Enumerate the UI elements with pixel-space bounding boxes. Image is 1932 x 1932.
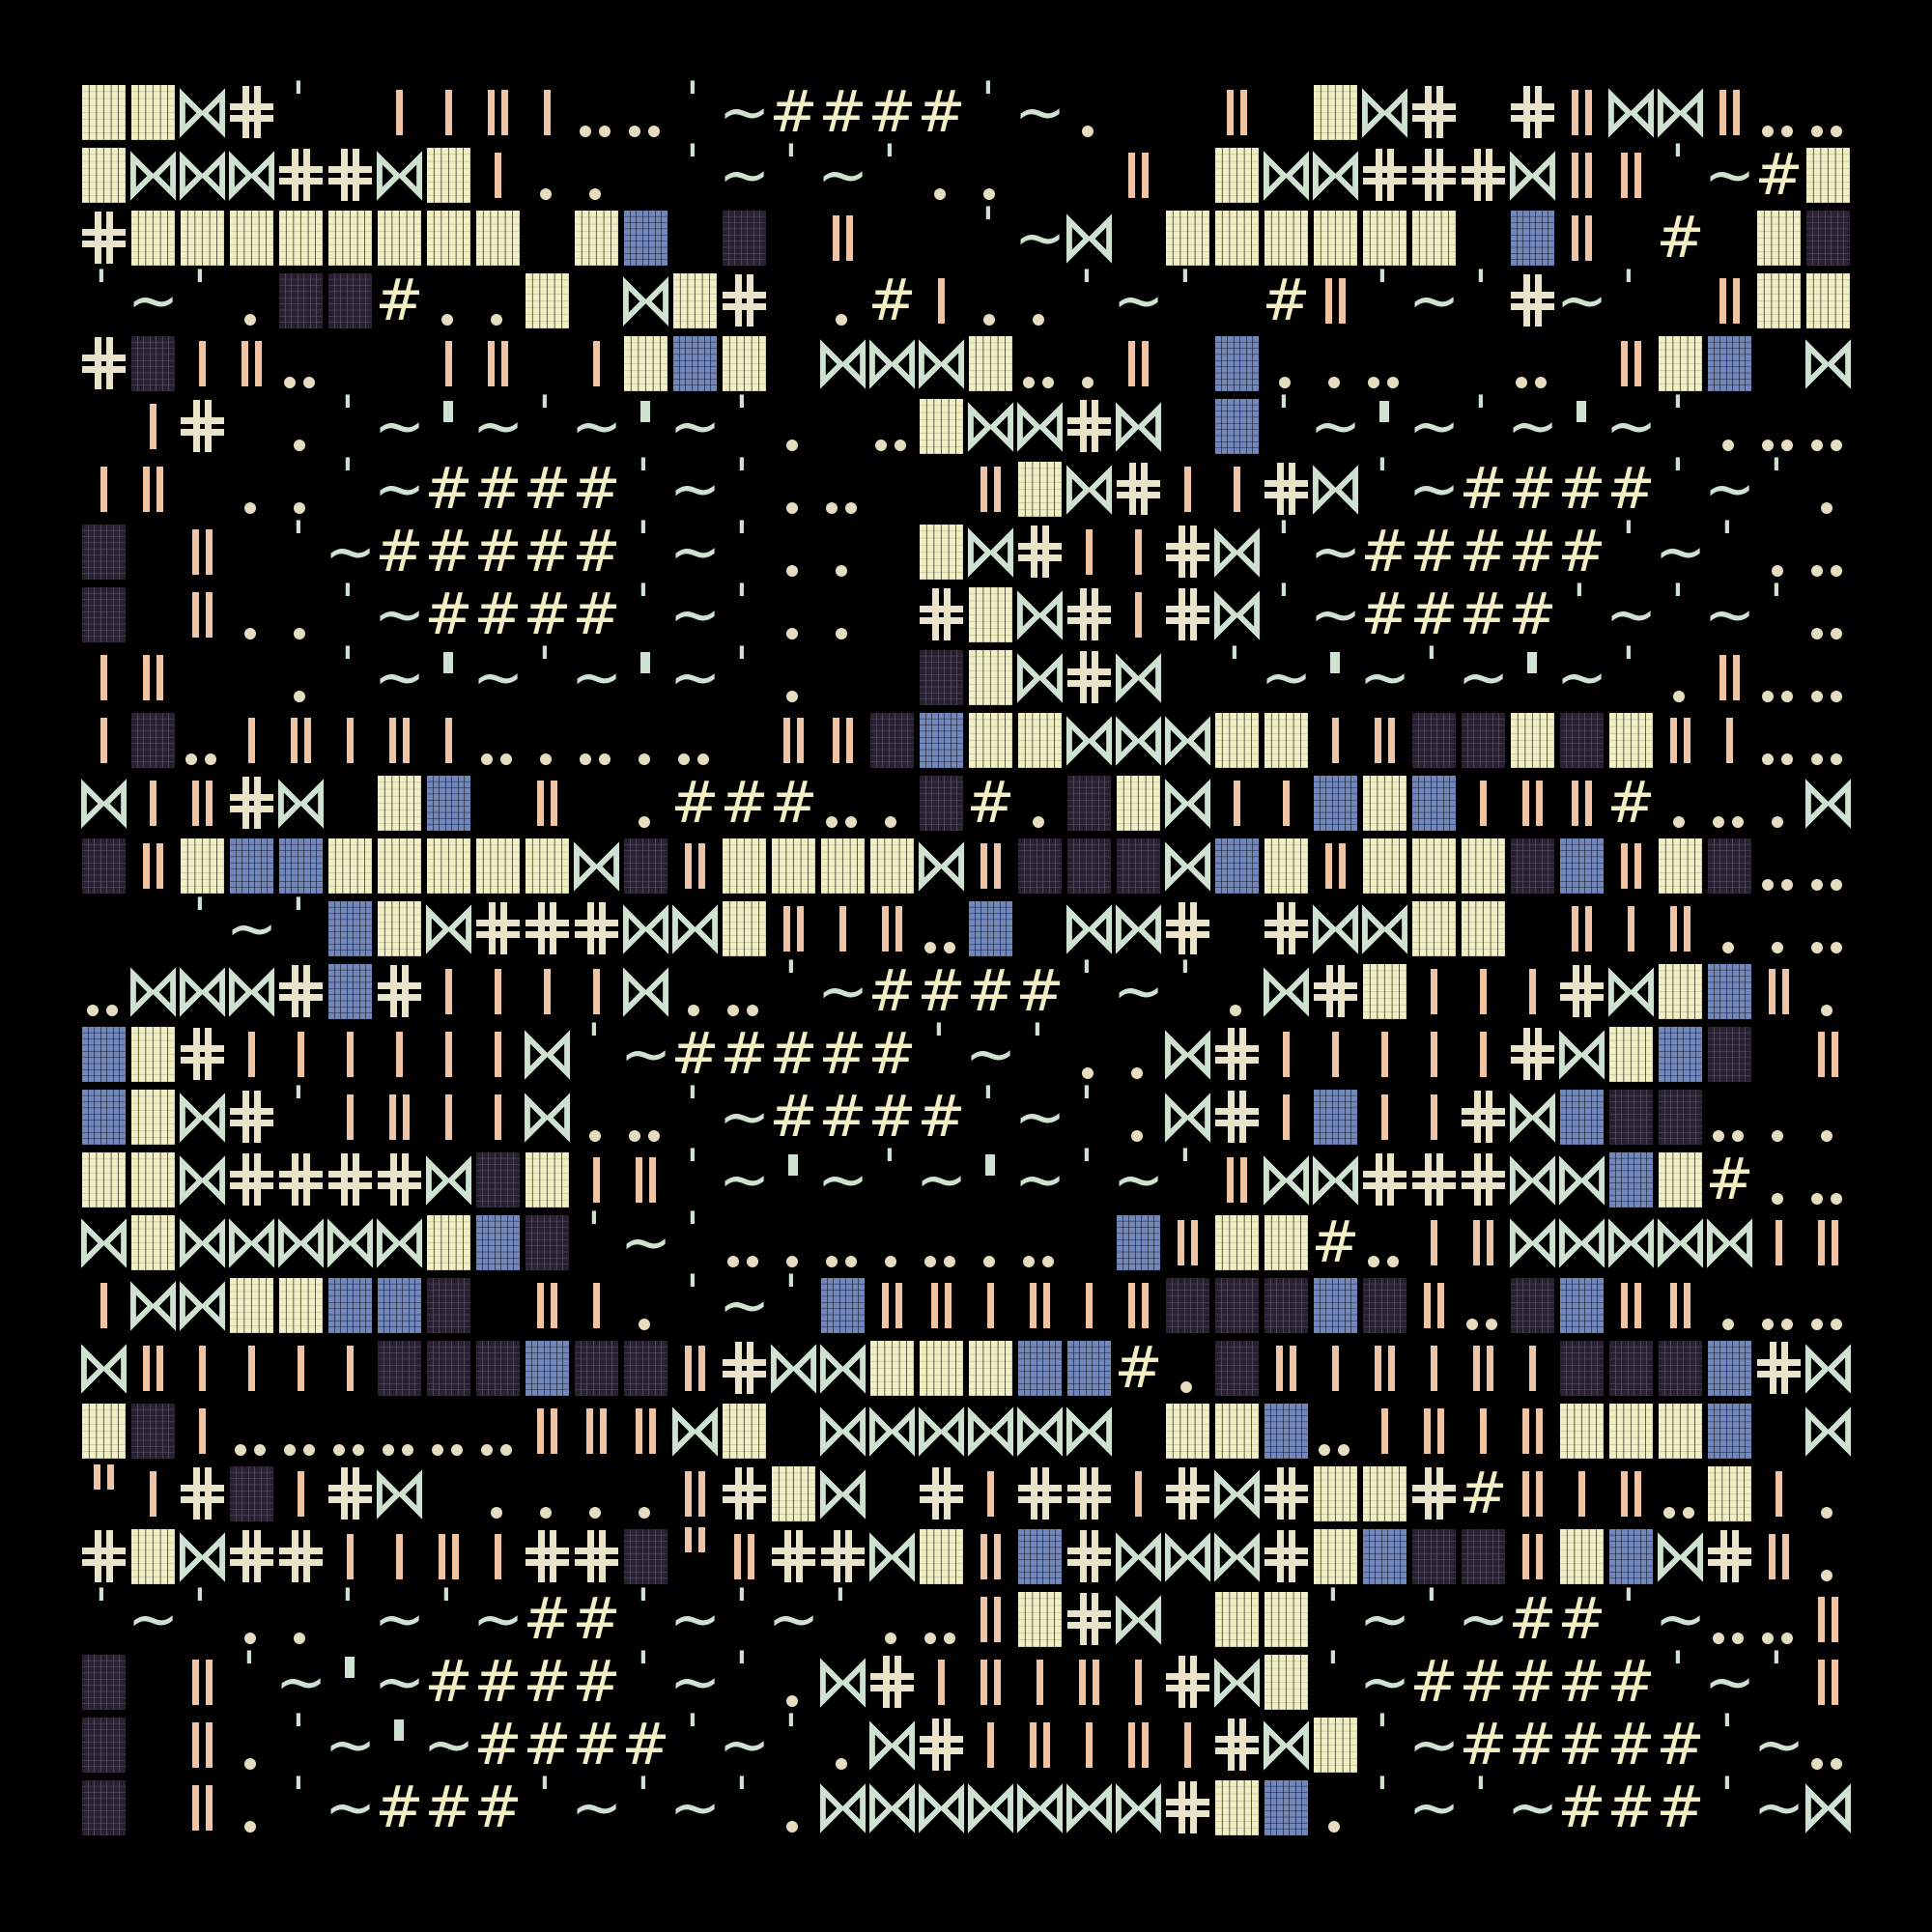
single-bar — [1360, 1400, 1409, 1463]
bowtie-icon — [1114, 1776, 1163, 1839]
double-bar — [178, 772, 227, 835]
double-cross-glyph — [1163, 1463, 1212, 1525]
purple-dotted-block — [523, 1211, 572, 1274]
quote-glyph: ' — [1705, 1776, 1754, 1839]
bowtie-icon — [79, 1211, 128, 1274]
double-cross-glyph — [276, 1525, 326, 1588]
double-cross-glyph — [917, 1714, 966, 1776]
double-bar — [1606, 1463, 1656, 1525]
hash-glyph: # — [424, 521, 473, 583]
tilde-glyph: ~ — [1409, 270, 1459, 332]
single-bar — [424, 1086, 473, 1149]
empty — [473, 1274, 523, 1337]
cream-dotted-block — [1311, 207, 1360, 270]
quote-glyph: ' — [1065, 270, 1114, 332]
single-bar — [227, 1337, 276, 1400]
tilde-glyph: ~ — [720, 81, 769, 144]
double-cross-glyph — [227, 772, 276, 835]
quote-glyph: ' — [326, 458, 375, 521]
double-bar — [1557, 897, 1606, 960]
cream-dotted-block — [1212, 1588, 1262, 1651]
single-bar — [1606, 897, 1656, 960]
tilde-glyph: ~ — [572, 646, 621, 709]
double-bar — [1804, 1588, 1853, 1651]
dot — [769, 458, 818, 521]
double-cross-glyph — [1065, 583, 1114, 646]
dot — [1804, 458, 1853, 521]
empty — [769, 1400, 818, 1463]
purple-dotted-block — [375, 1337, 424, 1400]
cream-dotted-block — [523, 270, 572, 332]
empty — [326, 81, 375, 144]
dot — [1804, 1525, 1853, 1588]
single-bar — [1163, 458, 1212, 521]
quote-glyph: ' — [621, 1651, 670, 1714]
cream-dotted-block — [1656, 1400, 1705, 1463]
dot — [670, 960, 720, 1023]
cream-dotted-block — [1212, 1211, 1262, 1274]
blue-dotted-block — [1557, 1274, 1606, 1337]
hash-glyph: # — [1557, 1588, 1606, 1651]
purple-dotted-block — [1212, 1274, 1262, 1337]
bowtie-icon — [867, 1714, 917, 1776]
bowtie-icon — [79, 1337, 128, 1400]
single-bar — [178, 1337, 227, 1400]
quote-glyph: ' — [1163, 1149, 1212, 1211]
empty — [1015, 144, 1065, 207]
blue-dotted-block — [1508, 207, 1557, 270]
dot-pair — [276, 332, 326, 395]
empty — [1163, 332, 1212, 395]
hash-glyph: # — [1754, 144, 1804, 207]
quote-glyph: ' — [79, 1588, 128, 1651]
single-bar — [917, 1651, 966, 1714]
dot-pair — [1360, 1211, 1409, 1274]
bowtie-icon — [1212, 521, 1262, 583]
tilde-glyph: ~ — [375, 395, 424, 458]
bowtie-icon — [1557, 1023, 1606, 1086]
bowtie-icon — [1262, 960, 1311, 1023]
single-bar — [424, 81, 473, 144]
single-bar — [1065, 1274, 1114, 1337]
single-bar — [424, 332, 473, 395]
dot-pair — [917, 897, 966, 960]
empty — [769, 332, 818, 395]
dot — [227, 583, 276, 646]
tick-glyph — [1557, 395, 1606, 458]
quote-glyph: ' — [670, 1714, 720, 1776]
blue-dotted-block — [1311, 772, 1360, 835]
purple-dotted-block — [867, 709, 917, 772]
dot — [276, 1588, 326, 1651]
purple-dotted-block — [79, 1776, 128, 1839]
quote-glyph: ' — [1311, 1651, 1360, 1714]
bowtie-icon — [1557, 1149, 1606, 1211]
tilde-glyph: ~ — [670, 1776, 720, 1839]
tilde-glyph: ~ — [1508, 395, 1557, 458]
cream-dotted-block — [917, 395, 966, 458]
single-bar — [966, 1463, 1015, 1525]
double-cross-glyph — [867, 1651, 917, 1714]
double-cross-glyph — [1114, 458, 1163, 521]
bowtie-icon — [867, 1525, 917, 1588]
double-cross-glyph — [1163, 521, 1212, 583]
double-bar — [1705, 270, 1754, 332]
blue-dotted-block — [1212, 835, 1262, 897]
double-bar — [1804, 1651, 1853, 1714]
dot-pair — [720, 960, 769, 1023]
bowtie-icon — [178, 144, 227, 207]
double-bar — [128, 1337, 178, 1400]
quote-glyph: ' — [178, 1588, 227, 1651]
single-bar — [79, 1274, 128, 1337]
blue-dotted-block — [1212, 395, 1262, 458]
double-bar — [1163, 1211, 1212, 1274]
blue-dotted-block — [79, 1086, 128, 1149]
double-cross-glyph — [1065, 1463, 1114, 1525]
purple-dotted-block — [621, 1337, 670, 1400]
dot-pair — [1311, 1400, 1360, 1463]
dot — [1015, 772, 1065, 835]
bowtie-icon — [79, 772, 128, 835]
tilde-glyph: ~ — [1705, 144, 1754, 207]
double-bar — [1804, 1211, 1853, 1274]
quote-glyph: ' — [178, 897, 227, 960]
tilde-glyph: ~ — [769, 1588, 818, 1651]
bowtie-icon — [917, 1776, 966, 1839]
single-bar — [375, 1023, 424, 1086]
dot — [1015, 270, 1065, 332]
double-bar — [1606, 144, 1656, 207]
bowtie-icon — [1065, 1776, 1114, 1839]
hash-glyph: # — [375, 270, 424, 332]
bowtie-icon — [1804, 1337, 1853, 1400]
quote-glyph: ' — [326, 1588, 375, 1651]
blue-dotted-block — [1656, 1023, 1705, 1086]
dot-pair — [178, 709, 227, 772]
single-bar — [473, 1525, 523, 1588]
single-bar — [1459, 1400, 1508, 1463]
hash-glyph: # — [966, 960, 1015, 1023]
bowtie-icon — [1163, 772, 1212, 835]
double-bar — [473, 81, 523, 144]
bowtie-icon — [178, 1086, 227, 1149]
cream-dotted-block — [1114, 772, 1163, 835]
tilde-glyph: ~ — [1114, 960, 1163, 1023]
tilde-glyph: ~ — [670, 458, 720, 521]
single-bar — [966, 1274, 1015, 1337]
quote-glyph: ' — [523, 1776, 572, 1839]
hash-glyph: # — [375, 1776, 424, 1839]
purple-dotted-block — [79, 1714, 128, 1776]
bowtie-icon — [1804, 1776, 1853, 1839]
quote-glyph: ' — [1656, 1651, 1705, 1714]
cream-dotted-block — [1262, 1588, 1311, 1651]
dot-pair — [818, 458, 867, 521]
bowtie-icon — [1015, 1400, 1065, 1463]
double-bar — [1606, 835, 1656, 897]
dot-pair — [1459, 1274, 1508, 1337]
bowtie-icon — [1015, 1776, 1065, 1839]
single-bar — [523, 960, 572, 1023]
bowtie-icon — [128, 1274, 178, 1337]
tilde-glyph: ~ — [621, 1211, 670, 1274]
purple-dotted-block — [1409, 709, 1459, 772]
empty — [128, 1776, 178, 1839]
dot — [1804, 1086, 1853, 1149]
purple-dotted-block — [1065, 772, 1114, 835]
single-bar — [1311, 709, 1360, 772]
quote-glyph: ' — [1360, 458, 1409, 521]
double-cross-glyph — [1065, 646, 1114, 709]
single-bar — [1262, 1023, 1311, 1086]
dot — [523, 144, 572, 207]
cream-dotted-block — [424, 144, 473, 207]
quote-glyph: ' — [720, 1776, 769, 1839]
blue-dotted-block — [375, 1274, 424, 1337]
cream-dotted-block — [1409, 897, 1459, 960]
cream-dotted-block — [1212, 207, 1262, 270]
cream-dotted-block — [424, 207, 473, 270]
bowtie-icon — [375, 1211, 424, 1274]
blue-dotted-block — [1705, 960, 1754, 1023]
single-bar — [523, 81, 572, 144]
single-bar — [1065, 1714, 1114, 1776]
tilde-glyph: ~ — [1409, 1714, 1459, 1776]
quote-glyph: ' — [1606, 646, 1656, 709]
blue-dotted-block — [326, 1274, 375, 1337]
single-bar — [1114, 1463, 1163, 1525]
double-bar — [1557, 81, 1606, 144]
dot — [1754, 772, 1804, 835]
bowtie-icon — [670, 1400, 720, 1463]
quote-glyph: ' — [818, 1588, 867, 1651]
tilde-glyph: ~ — [326, 1714, 375, 1776]
quote-glyph: ' — [1754, 1651, 1804, 1714]
hash-glyph: # — [1606, 772, 1656, 835]
single-bar — [128, 772, 178, 835]
quote-glyph: ' — [572, 1023, 621, 1086]
dot — [1754, 897, 1804, 960]
hash-glyph: # — [572, 1588, 621, 1651]
bowtie-icon — [1212, 1463, 1262, 1525]
purple-dotted-block — [1508, 1274, 1557, 1337]
cream-dotted-block — [966, 332, 1015, 395]
empty — [227, 646, 276, 709]
bowtie-icon — [1114, 1525, 1163, 1588]
quote-glyph: ' — [1557, 583, 1606, 646]
empty — [473, 772, 523, 835]
purple-dotted-block — [79, 583, 128, 646]
single-bar — [1311, 1023, 1360, 1086]
cream-dotted-block — [1311, 81, 1360, 144]
dot — [818, 1714, 867, 1776]
bowtie-icon — [276, 1211, 326, 1274]
quote-glyph: ' — [1360, 270, 1409, 332]
blue-dotted-block — [966, 897, 1015, 960]
single-bar — [1212, 772, 1262, 835]
bowtie-icon — [1804, 332, 1853, 395]
cream-dotted-block — [1557, 1400, 1606, 1463]
double-cross-glyph — [1065, 395, 1114, 458]
quote-glyph: ' — [769, 1714, 818, 1776]
empty — [720, 709, 769, 772]
double-cross-glyph — [1015, 1463, 1065, 1525]
bowtie-icon — [227, 1211, 276, 1274]
double-cross-glyph — [227, 1086, 276, 1149]
hash-glyph: # — [720, 1023, 769, 1086]
hash-glyph: # — [1459, 1463, 1508, 1525]
empty — [917, 458, 966, 521]
cream-dotted-block — [1656, 835, 1705, 897]
purple-dotted-block — [276, 270, 326, 332]
double-bar — [1508, 1463, 1557, 1525]
purple-dotted-block — [79, 1651, 128, 1714]
cream-dotted-block — [720, 1400, 769, 1463]
single-bar — [424, 1023, 473, 1086]
cream-dotted-block — [1557, 1525, 1606, 1588]
dot — [1212, 960, 1262, 1023]
tilde-glyph: ~ — [818, 960, 867, 1023]
bowtie-icon — [227, 960, 276, 1023]
double-bar — [670, 1463, 720, 1525]
double-bar — [966, 1525, 1015, 1588]
dot — [1114, 1086, 1163, 1149]
bowtie-icon — [1114, 897, 1163, 960]
bowtie-icon — [178, 1149, 227, 1211]
double-cross-glyph — [1409, 1149, 1459, 1211]
bowtie-icon — [1212, 1525, 1262, 1588]
double-cross-glyph — [1212, 1023, 1262, 1086]
single-bar — [424, 960, 473, 1023]
double-bar — [178, 521, 227, 583]
cream-dotted-block — [1459, 897, 1508, 960]
tilde-glyph: ~ — [1557, 270, 1606, 332]
quote-glyph: ' — [1262, 583, 1311, 646]
double-bar — [1459, 1337, 1508, 1400]
single-bar — [424, 709, 473, 772]
double-bar — [1508, 772, 1557, 835]
cream-dotted-block — [1360, 1463, 1409, 1525]
hash-glyph: # — [966, 772, 1015, 835]
cream-dotted-block — [276, 207, 326, 270]
double-bar — [1114, 1274, 1163, 1337]
bowtie-icon — [128, 144, 178, 207]
dot — [276, 395, 326, 458]
quote-glyph: ' — [769, 1274, 818, 1337]
double-bar — [1705, 646, 1754, 709]
hash-glyph: # — [523, 1588, 572, 1651]
single-bar — [178, 332, 227, 395]
dot-pair — [1804, 1149, 1853, 1211]
bowtie-icon — [867, 1400, 917, 1463]
purple-dotted-block — [1508, 835, 1557, 897]
bowtie-icon — [1262, 144, 1311, 207]
empty — [128, 521, 178, 583]
bowtie-icon — [523, 1086, 572, 1149]
single-bar — [917, 270, 966, 332]
empty — [670, 207, 720, 270]
hash-glyph: # — [1114, 1337, 1163, 1400]
dot — [769, 646, 818, 709]
double-cross-glyph — [1262, 1463, 1311, 1525]
blue-dotted-block — [1015, 1337, 1065, 1400]
dot — [523, 709, 572, 772]
empty — [769, 270, 818, 332]
hash-glyph: # — [1508, 521, 1557, 583]
dot-pair — [1015, 332, 1065, 395]
purple-dotted-block — [621, 835, 670, 897]
bowtie-icon — [1114, 395, 1163, 458]
empty — [128, 583, 178, 646]
bowtie-icon — [966, 395, 1015, 458]
tick-glyph — [1508, 646, 1557, 709]
dot-pair — [1804, 1274, 1853, 1337]
quote-glyph: ' — [1409, 646, 1459, 709]
blue-dotted-block — [424, 772, 473, 835]
cream-dotted-block — [375, 835, 424, 897]
bowtie-icon — [1114, 1588, 1163, 1651]
double-cross-glyph — [1163, 1651, 1212, 1714]
tilde-glyph: ~ — [473, 646, 523, 709]
double-bar — [1114, 144, 1163, 207]
purple-dotted-block — [1656, 1086, 1705, 1149]
dot-pair — [1705, 1086, 1754, 1149]
short-double-bar — [79, 1463, 128, 1525]
cream-dotted-block — [276, 1274, 326, 1337]
cream-dotted-block — [1360, 960, 1409, 1023]
bowtie-icon — [1163, 709, 1212, 772]
bowtie-icon — [1212, 1651, 1262, 1714]
hash-glyph: # — [572, 1651, 621, 1714]
quote-glyph: ' — [276, 1086, 326, 1149]
purple-dotted-block — [1804, 207, 1853, 270]
double-bar — [1015, 1274, 1065, 1337]
bowtie-icon — [1606, 81, 1656, 144]
double-bar — [1114, 332, 1163, 395]
single-bar — [227, 709, 276, 772]
bowtie-icon — [1311, 897, 1360, 960]
cream-dotted-block — [375, 897, 424, 960]
double-bar — [572, 1400, 621, 1463]
empty — [1557, 332, 1606, 395]
dot — [867, 772, 917, 835]
dot-pair — [1508, 332, 1557, 395]
tick-glyph — [966, 1149, 1015, 1211]
bowtie-icon — [1262, 1149, 1311, 1211]
double-cross-glyph — [572, 1525, 621, 1588]
dot-pair — [917, 1588, 966, 1651]
purple-dotted-block — [1262, 1274, 1311, 1337]
single-bar — [1114, 521, 1163, 583]
double-bar — [1311, 835, 1360, 897]
empty — [867, 521, 917, 583]
blue-dotted-block — [227, 835, 276, 897]
purple-dotted-block — [1705, 835, 1754, 897]
tilde-glyph: ~ — [1114, 1149, 1163, 1211]
quote-glyph: ' — [1065, 1149, 1114, 1211]
empty — [326, 772, 375, 835]
bowtie-icon — [128, 960, 178, 1023]
quote-glyph: ' — [867, 1149, 917, 1211]
purple-dotted-block — [1705, 1023, 1754, 1086]
cream-dotted-block — [79, 1149, 128, 1211]
double-bar — [818, 709, 867, 772]
blue-dotted-block — [523, 1337, 572, 1400]
bowtie-icon — [178, 81, 227, 144]
empty — [1409, 332, 1459, 395]
quote-glyph: ' — [769, 144, 818, 207]
